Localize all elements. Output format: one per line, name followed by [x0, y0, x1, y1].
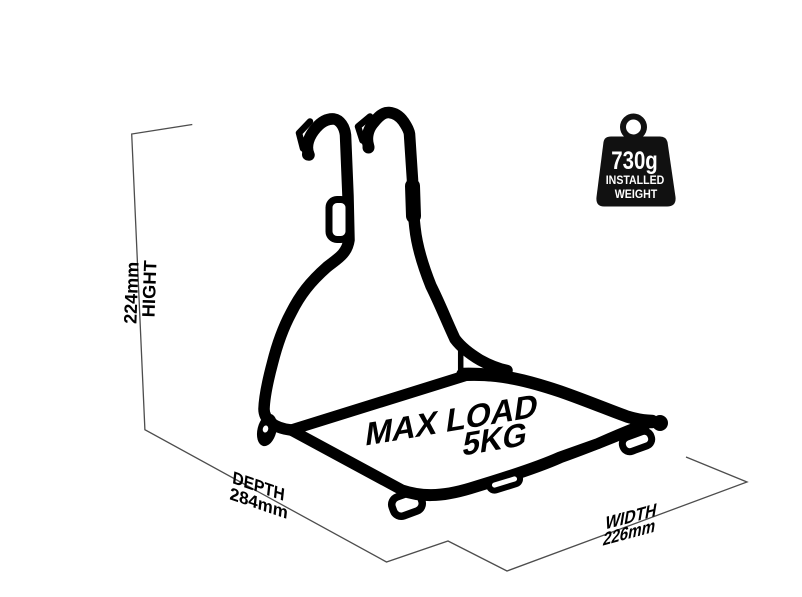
svg-text:INSTALLED: INSTALLED	[606, 175, 665, 187]
svg-text:730g: 730g	[611, 147, 658, 175]
svg-text:224mm: 224mm	[120, 261, 142, 324]
svg-text:WEIGHT: WEIGHT	[615, 189, 658, 201]
